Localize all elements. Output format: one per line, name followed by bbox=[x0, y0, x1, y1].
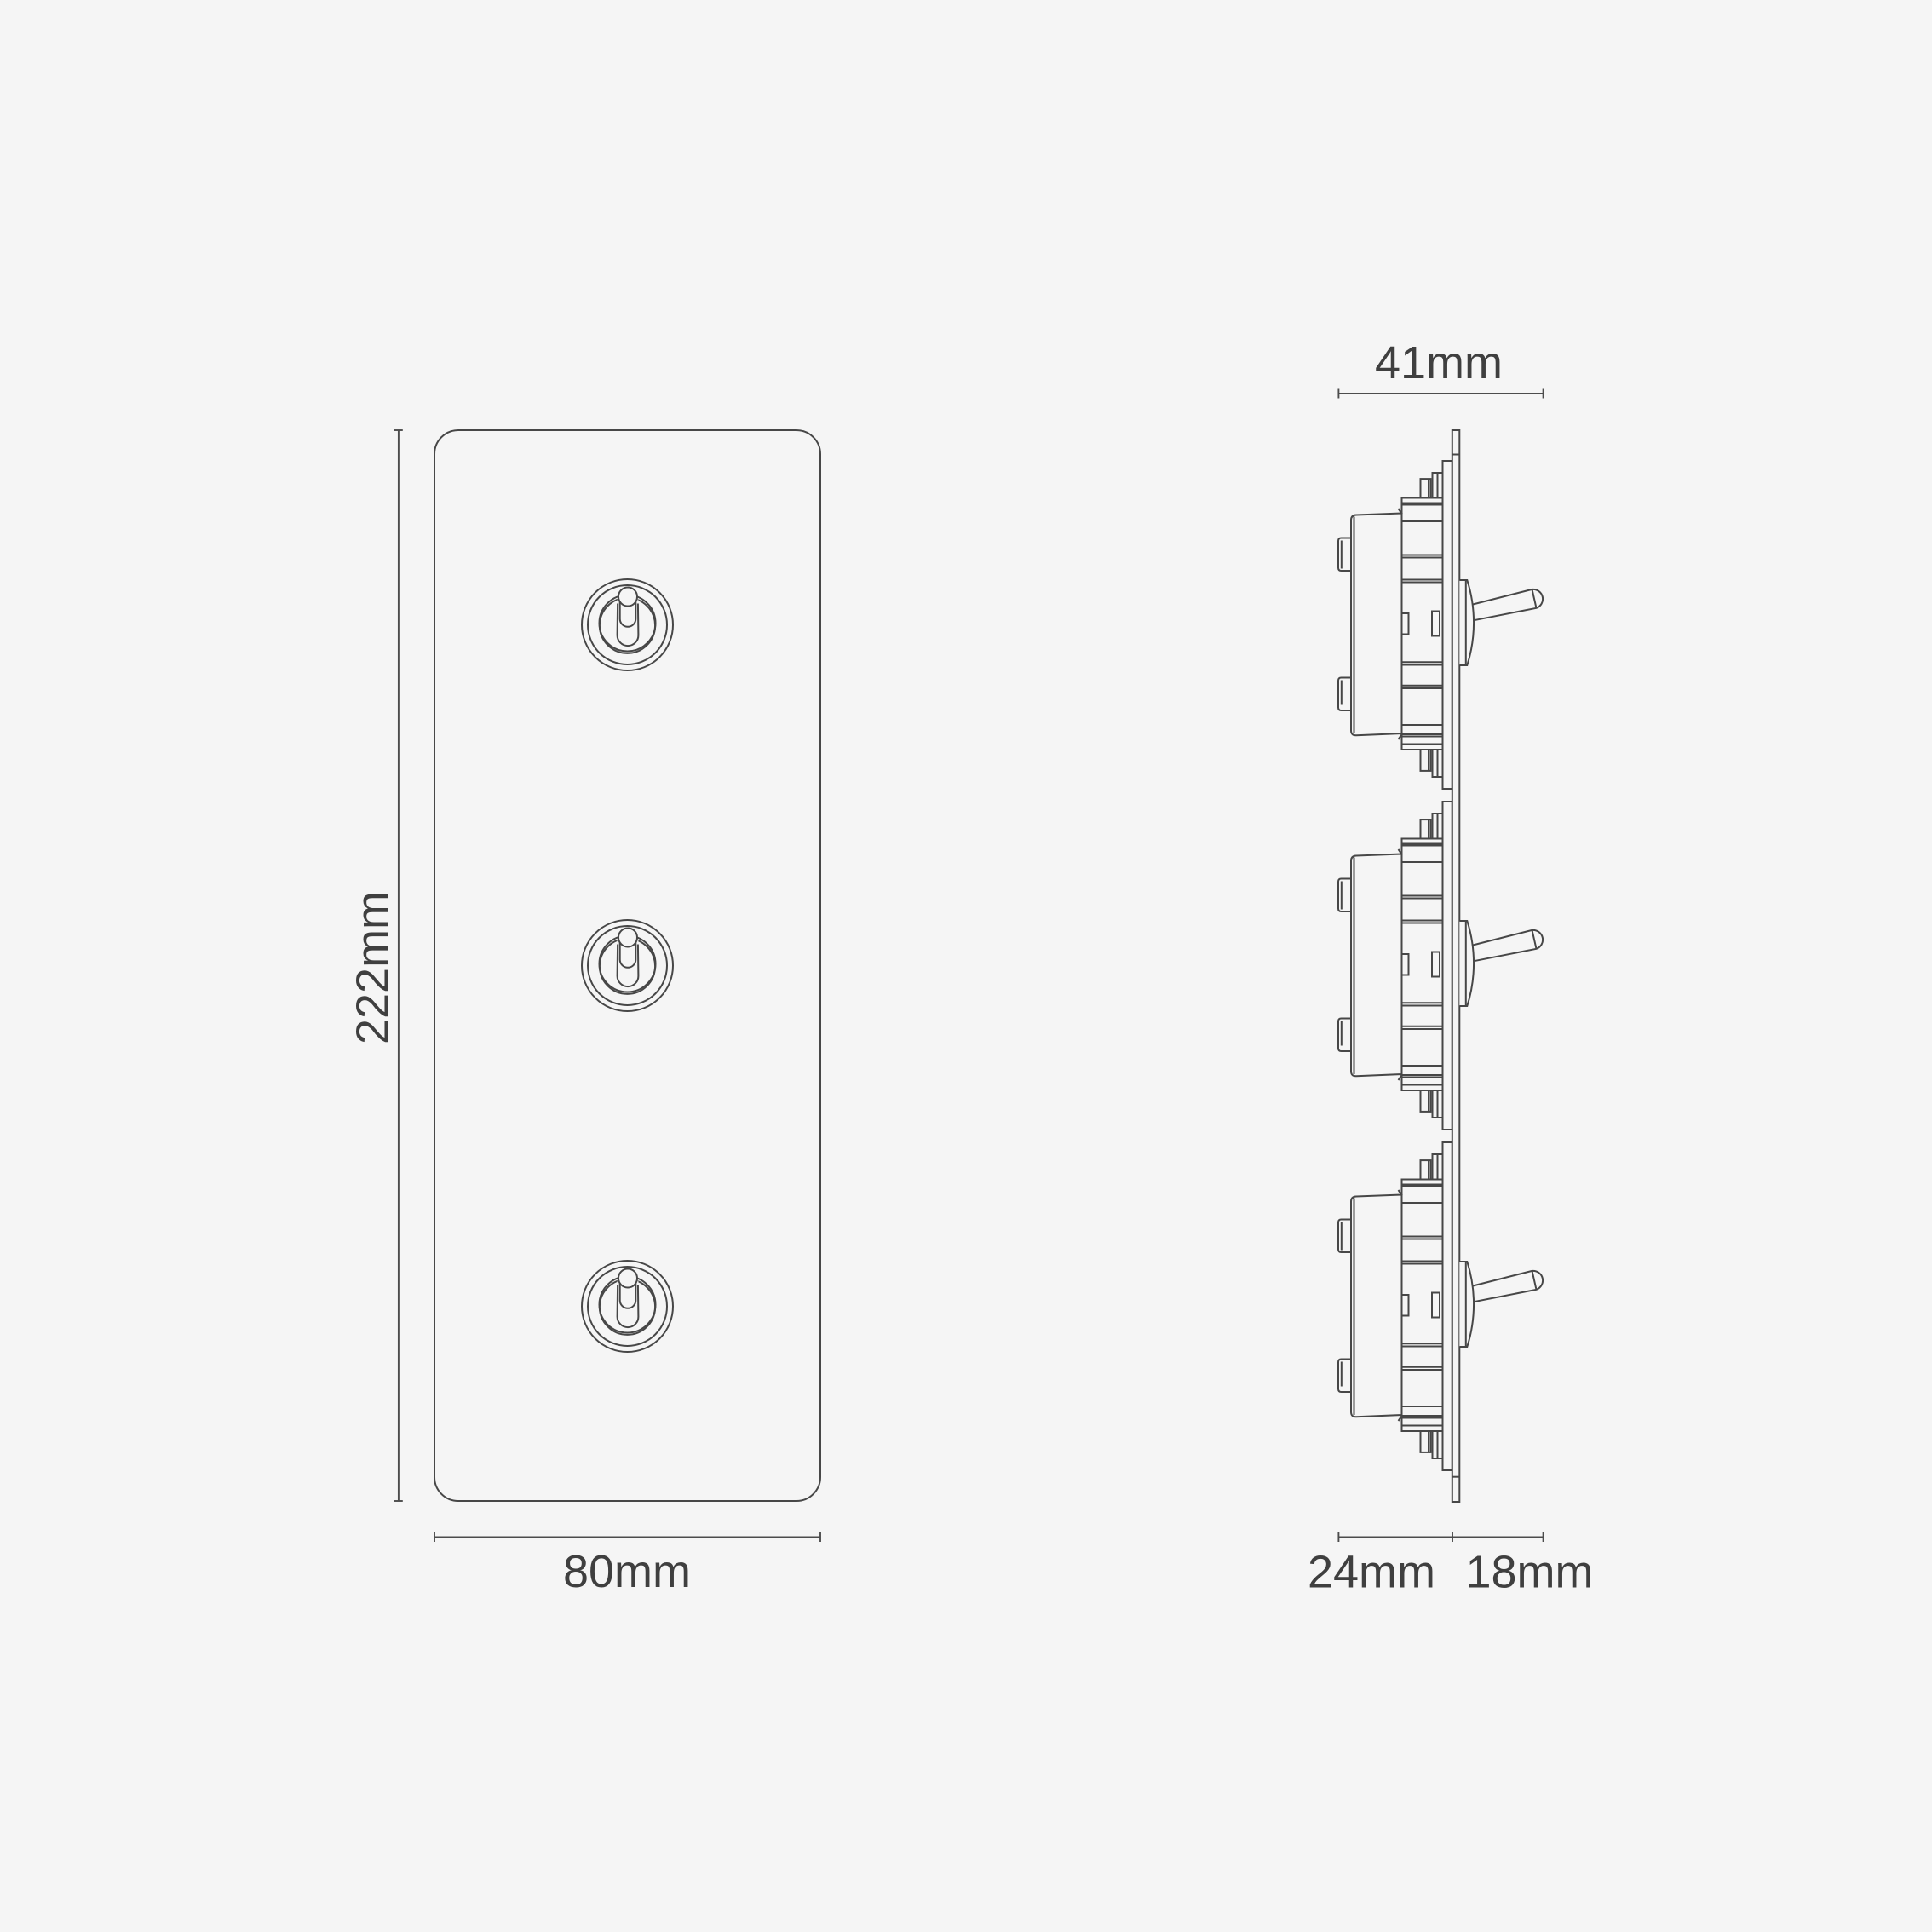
svg-text:18mm: 18mm bbox=[1465, 1547, 1593, 1598]
svg-text:80mm: 80mm bbox=[563, 1546, 691, 1597]
svg-text:24mm: 24mm bbox=[1308, 1547, 1435, 1598]
svg-text:222mm: 222mm bbox=[348, 891, 399, 1044]
svg-text:41mm: 41mm bbox=[1375, 337, 1503, 388]
